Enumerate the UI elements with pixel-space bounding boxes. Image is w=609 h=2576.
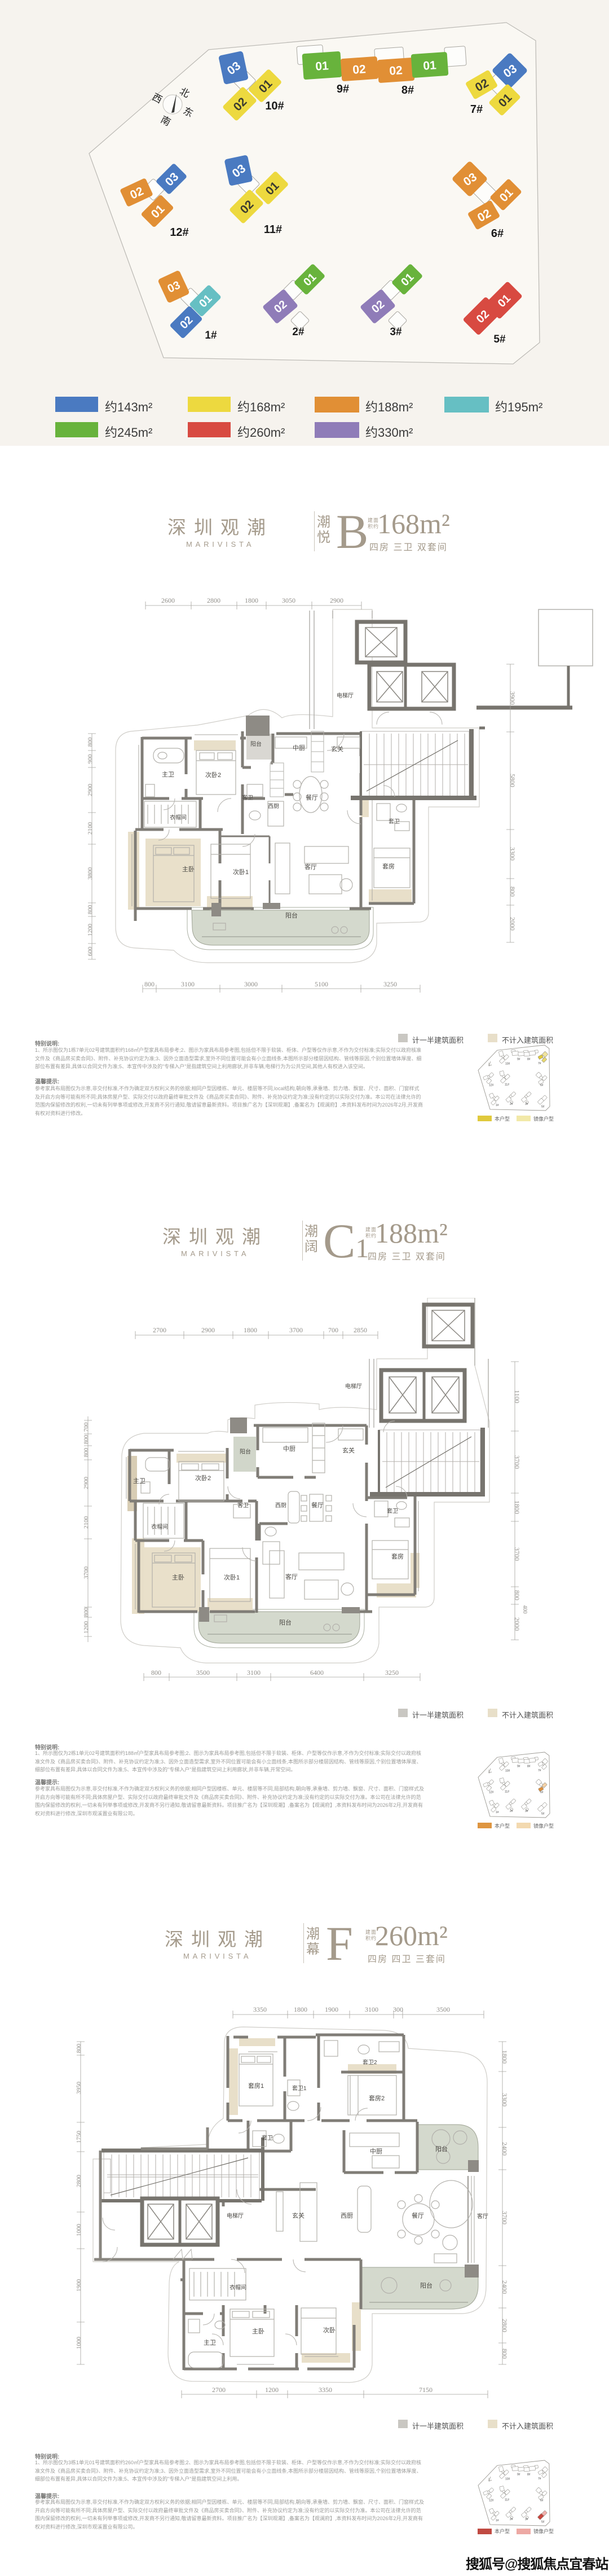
svg-text:套卫: 套卫 — [389, 818, 400, 825]
svg-text:2#: 2# — [510, 2518, 513, 2521]
svg-text:3000: 3000 — [244, 980, 258, 988]
svg-text:2600: 2600 — [161, 596, 175, 604]
svg-text:800: 800 — [87, 905, 94, 914]
svg-text:800: 800 — [83, 1447, 90, 1457]
svg-text:主卫: 主卫 — [162, 771, 174, 778]
svg-text:2100: 2100 — [87, 822, 94, 835]
svg-text:11#: 11# — [505, 1791, 509, 1794]
svg-text:阳台: 阳台 — [240, 1448, 251, 1455]
svg-text:衣帽间: 衣帽间 — [151, 1523, 168, 1530]
svg-text:阳台: 阳台 — [250, 740, 262, 748]
svg-text:电梯厅: 电梯厅 — [337, 692, 354, 699]
svg-text:2000: 2000 — [509, 917, 517, 931]
svg-text:3700: 3700 — [83, 1566, 90, 1579]
svg-text:2800: 2800 — [76, 2175, 82, 2188]
svg-text:5800: 5800 — [509, 774, 517, 787]
svg-text:01: 01 — [423, 59, 437, 73]
svg-text:3100: 3100 — [181, 980, 195, 988]
svg-text:玄关: 玄关 — [342, 1446, 355, 1454]
svg-text:700: 700 — [328, 1326, 338, 1334]
svg-text:阳台: 阳台 — [435, 2145, 448, 2153]
svg-text:9#: 9# — [337, 83, 349, 95]
svg-text:电梯厅: 电梯厅 — [345, 1383, 362, 1390]
svg-text:1200: 1200 — [83, 1621, 90, 1634]
svg-text:9#: 9# — [517, 1765, 520, 1768]
svg-text:600: 600 — [87, 946, 94, 956]
svg-text:1900: 1900 — [76, 2279, 82, 2292]
svg-text:1#: 1# — [496, 1104, 499, 1107]
svg-text:1#: 1# — [205, 330, 217, 341]
svg-text:7#: 7# — [470, 103, 483, 116]
svg-text:2800: 2800 — [207, 596, 220, 604]
svg-text:800: 800 — [76, 2043, 82, 2053]
svg-text:3#: 3# — [390, 326, 402, 338]
svg-text:2700: 2700 — [153, 1326, 166, 1334]
svg-text:中厨: 中厨 — [370, 2148, 382, 2155]
svg-text:2#: 2# — [292, 326, 304, 338]
svg-text:2700: 2700 — [212, 2386, 226, 2394]
svg-text:次卧1: 次卧1 — [233, 868, 249, 876]
svg-text:1800: 1800 — [245, 596, 258, 604]
svg-text:3700: 3700 — [289, 1326, 303, 1334]
svg-text:1800: 1800 — [513, 1500, 521, 1514]
svg-text:3950: 3950 — [76, 2082, 82, 2095]
svg-text:300: 300 — [393, 2005, 403, 2013]
svg-text:10#: 10# — [505, 1063, 510, 1066]
svg-text:900: 900 — [87, 754, 94, 763]
svg-text:3250: 3250 — [383, 980, 397, 988]
svg-text:2#: 2# — [510, 1103, 513, 1106]
svg-text:2900: 2900 — [330, 596, 343, 604]
svg-text:3300: 3300 — [501, 2093, 509, 2107]
svg-text:02: 02 — [352, 63, 367, 77]
svg-text:套房: 套房 — [391, 1553, 404, 1560]
svg-text:3#: 3# — [525, 1810, 528, 1813]
svg-text:客卫: 客卫 — [242, 794, 253, 801]
svg-text:8#: 8# — [527, 1058, 531, 1061]
svg-text:6#: 6# — [540, 1791, 544, 1794]
svg-text:主卧: 主卧 — [172, 1574, 184, 1581]
svg-text:客卫: 客卫 — [237, 1502, 249, 1509]
svg-text:5#: 5# — [541, 1813, 545, 1816]
svg-text:400: 400 — [522, 1605, 528, 1614]
svg-text:800: 800 — [501, 2349, 509, 2359]
svg-text:2900: 2900 — [87, 784, 94, 797]
svg-text:6#: 6# — [491, 227, 504, 240]
svg-text:12#: 12# — [489, 2499, 494, 2503]
svg-text:中厨: 中厨 — [283, 1445, 295, 1452]
svg-text:餐厅: 餐厅 — [412, 2211, 424, 2219]
svg-text:套卫: 套卫 — [262, 2134, 273, 2141]
svg-text:800: 800 — [87, 737, 94, 747]
svg-text:6#: 6# — [540, 1084, 544, 1087]
svg-text:次卧2: 次卧2 — [205, 771, 221, 779]
svg-text:3250: 3250 — [385, 1669, 399, 1677]
svg-text:2000: 2000 — [513, 1617, 521, 1631]
svg-text:次卧: 次卧 — [323, 2326, 336, 2334]
svg-text:2900: 2900 — [83, 1477, 90, 1490]
svg-text:5100: 5100 — [315, 980, 328, 988]
svg-text:3700: 3700 — [513, 1547, 521, 1561]
svg-text:3300: 3300 — [509, 847, 517, 861]
svg-text:套卫: 套卫 — [387, 1507, 398, 1515]
svg-text:7#: 7# — [538, 2477, 541, 2481]
svg-text:700: 700 — [83, 1422, 90, 1432]
svg-text:客厅: 客厅 — [285, 1573, 298, 1581]
svg-text:1800: 1800 — [244, 1326, 257, 1334]
svg-text:5#: 5# — [493, 333, 506, 345]
svg-text:套房2: 套房2 — [369, 2095, 385, 2102]
svg-text:餐厅: 餐厅 — [306, 793, 318, 801]
svg-text:3100: 3100 — [365, 2005, 378, 2013]
svg-text:餐厅: 餐厅 — [311, 1501, 324, 1509]
svg-text:7#: 7# — [538, 1062, 541, 1065]
svg-text:11#: 11# — [264, 223, 282, 236]
svg-text:1100: 1100 — [513, 1390, 521, 1403]
svg-text:阳台: 阳台 — [285, 911, 298, 919]
svg-text:6400: 6400 — [310, 1669, 324, 1677]
svg-text:西厨: 西厨 — [268, 803, 279, 810]
svg-text:客厅: 客厅 — [477, 2213, 488, 2220]
svg-text:800: 800 — [144, 980, 155, 988]
svg-text:2900: 2900 — [201, 1326, 215, 1334]
svg-text:1200: 1200 — [265, 2386, 279, 2394]
svg-text:1#: 1# — [496, 2519, 499, 2522]
svg-text:10#: 10# — [505, 2478, 510, 2481]
svg-text:01: 01 — [315, 59, 329, 73]
svg-text:1900: 1900 — [325, 2005, 338, 2013]
svg-text:3#: 3# — [525, 2518, 528, 2521]
svg-text:电梯厅: 电梯厅 — [227, 2212, 244, 2219]
svg-text:8#: 8# — [401, 84, 414, 96]
svg-text:9#: 9# — [517, 1058, 520, 1061]
svg-text:1000: 1000 — [76, 2337, 82, 2350]
svg-text:3700: 3700 — [501, 2211, 509, 2224]
svg-text:3500: 3500 — [436, 2005, 450, 2013]
svg-text:玄关: 玄关 — [331, 745, 343, 753]
svg-text:2#: 2# — [510, 1810, 513, 1813]
svg-text:800: 800 — [509, 887, 517, 897]
svg-text:衣帽间: 衣帽间 — [230, 2284, 246, 2291]
svg-text:套房1: 套房1 — [248, 2082, 264, 2090]
svg-text:衣帽间: 衣帽间 — [170, 814, 187, 821]
svg-text:2100: 2100 — [83, 1516, 90, 1529]
svg-text:1800: 1800 — [294, 2005, 307, 2013]
svg-text:800: 800 — [151, 1669, 161, 1677]
svg-text:12#: 12# — [170, 226, 188, 239]
svg-text:3#: 3# — [525, 1103, 528, 1106]
svg-text:02: 02 — [389, 64, 403, 78]
svg-text:8#: 8# — [527, 2473, 531, 2477]
svg-text:主卧: 主卧 — [182, 866, 195, 873]
svg-text:1800: 1800 — [501, 2050, 509, 2064]
svg-text:5#: 5# — [541, 2521, 545, 2524]
svg-text:主卫: 主卫 — [204, 2339, 216, 2346]
svg-text:9#: 9# — [517, 2473, 520, 2477]
svg-text:3050: 3050 — [282, 596, 295, 604]
svg-text:西厨: 西厨 — [275, 1502, 286, 1509]
svg-text:800: 800 — [83, 1607, 90, 1617]
svg-text:阳台: 阳台 — [279, 1618, 292, 1626]
svg-text:11#: 11# — [505, 2499, 509, 2502]
svg-text:2850: 2850 — [354, 1326, 367, 1334]
svg-text:2400: 2400 — [501, 2280, 509, 2294]
svg-text:8#: 8# — [527, 1765, 531, 1768]
svg-text:2800: 2800 — [501, 2319, 509, 2332]
svg-text:3100: 3100 — [247, 1669, 261, 1677]
svg-text:玄关: 玄关 — [292, 2211, 304, 2219]
svg-text:3350: 3350 — [253, 2005, 267, 2013]
svg-text:6#: 6# — [540, 2499, 544, 2503]
svg-text:10#: 10# — [265, 100, 284, 112]
svg-text:阳台: 阳台 — [420, 2281, 433, 2289]
svg-text:次卧2: 次卧2 — [195, 1474, 211, 1482]
svg-text:3500: 3500 — [196, 1669, 210, 1677]
svg-text:2400: 2400 — [501, 2142, 509, 2156]
svg-text:主卧: 主卧 — [252, 2328, 264, 2335]
svg-text:12#: 12# — [489, 1084, 494, 1087]
svg-text:1#: 1# — [496, 1811, 499, 1814]
svg-text:套卫2: 套卫2 — [363, 2059, 377, 2066]
svg-text:3800: 3800 — [87, 867, 94, 880]
svg-text:800: 800 — [83, 1434, 90, 1444]
svg-text:中厨: 中厨 — [293, 744, 305, 752]
svg-text:套卫1: 套卫1 — [292, 2085, 307, 2092]
svg-text:西厨: 西厨 — [341, 2212, 353, 2219]
svg-text:11#: 11# — [505, 1083, 509, 1087]
svg-text:800: 800 — [513, 1590, 521, 1600]
svg-text:3350: 3350 — [319, 2386, 332, 2394]
svg-text:5#: 5# — [541, 1105, 545, 1109]
svg-text:1200: 1200 — [87, 924, 94, 937]
svg-text:客厅: 客厅 — [304, 863, 317, 871]
svg-text:3900: 3900 — [509, 691, 517, 705]
svg-text:7150: 7150 — [419, 2386, 433, 2394]
svg-text:12#: 12# — [489, 1791, 494, 1794]
svg-text:1750: 1750 — [76, 2131, 82, 2144]
svg-text:次卧1: 次卧1 — [224, 1573, 240, 1581]
svg-text:10#: 10# — [505, 1770, 510, 1773]
svg-text:1000: 1000 — [76, 2224, 82, 2237]
svg-text:7#: 7# — [538, 1769, 541, 1772]
svg-text:主卫: 主卫 — [133, 1477, 145, 1485]
svg-text:3700: 3700 — [513, 1455, 521, 1469]
svg-text:套房: 套房 — [382, 863, 395, 870]
